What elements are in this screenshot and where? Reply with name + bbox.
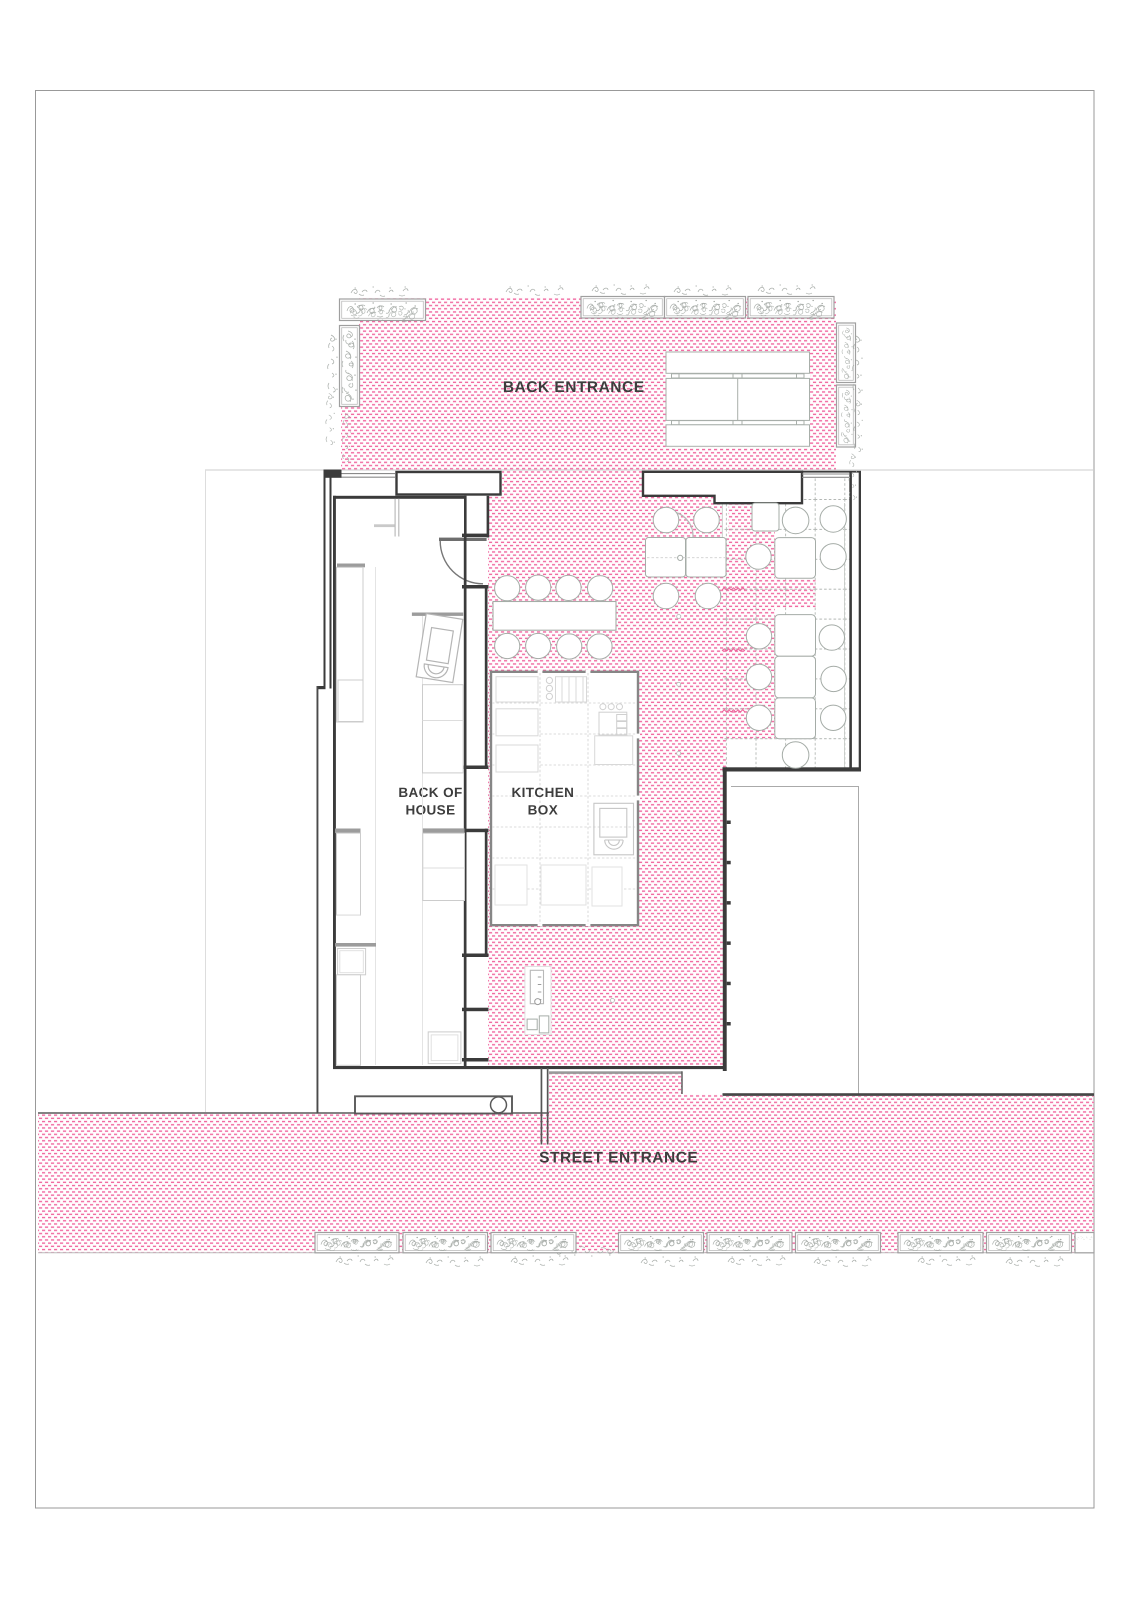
- svg-text:HOUSE: HOUSE: [405, 803, 455, 818]
- svg-text:KITCHEN: KITCHEN: [511, 785, 574, 800]
- svg-text:STREET ENTRANCE: STREET ENTRANCE: [539, 1150, 698, 1167]
- svg-text:BACK ENTRANCE: BACK ENTRANCE: [503, 379, 645, 396]
- svg-text:BACK OF: BACK OF: [398, 785, 462, 800]
- svg-text:BOX: BOX: [528, 803, 558, 818]
